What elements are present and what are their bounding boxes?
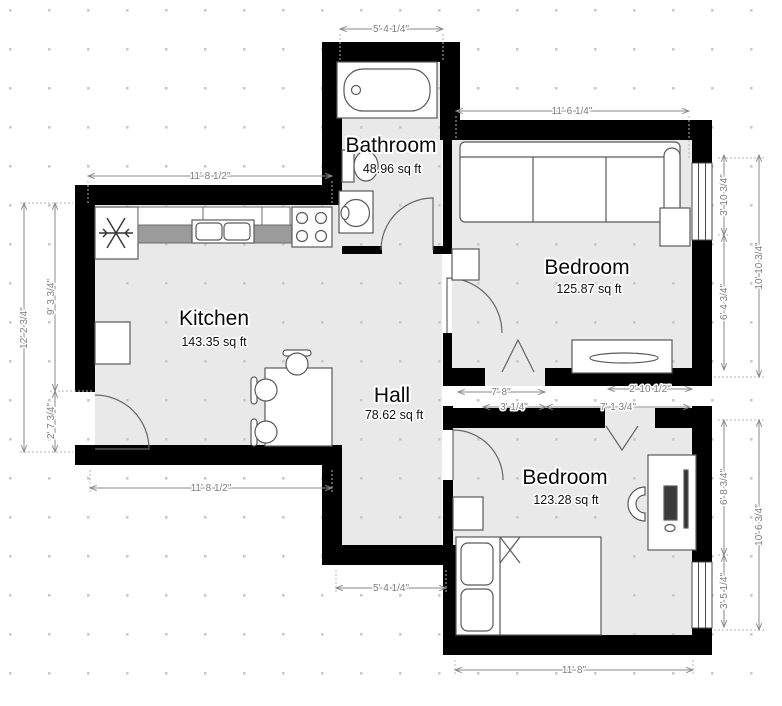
dim-label: 11' 8" bbox=[562, 665, 587, 676]
room-area-kitchen: 143.35 sq ft bbox=[181, 335, 247, 349]
dim-label: 6' 4 3/4" bbox=[719, 284, 730, 320]
dim-label: 11' 8 1/2" bbox=[191, 483, 232, 494]
room-area-bathroom: 48.96 sq ft bbox=[363, 162, 422, 176]
dim-label: 5' 4 1/4" bbox=[373, 583, 409, 594]
room-area-bedroom-top: 125.87 sq ft bbox=[556, 282, 622, 296]
room-area-hall: 78.62 sq ft bbox=[365, 408, 424, 422]
dresser-icon bbox=[572, 340, 672, 373]
window-bedroom-bottom bbox=[692, 562, 712, 628]
dim-label: 6' 8 3/4" bbox=[719, 469, 730, 505]
dim-label: 5' 4 1/4" bbox=[373, 24, 409, 35]
bathtub-icon bbox=[337, 62, 437, 118]
dim-label: 3' 1/4" bbox=[500, 402, 528, 413]
pillow bbox=[461, 543, 493, 585]
room-title-hall: Hall bbox=[374, 384, 410, 407]
stove-icon bbox=[292, 207, 332, 247]
computer-icon bbox=[664, 486, 677, 520]
pillow bbox=[461, 589, 493, 631]
window-bedroom-top bbox=[692, 163, 712, 240]
dim-label: 9' 3 3/4" bbox=[46, 279, 57, 315]
dim-label: 11' 8 1/2" bbox=[190, 171, 231, 182]
dim-label: 11' 6 1/4" bbox=[552, 106, 593, 117]
fridge-icon bbox=[95, 207, 138, 259]
nightstand bbox=[660, 208, 690, 246]
dim-label: 7' 8" bbox=[491, 387, 511, 398]
dim-label: 3' 5 1/4" bbox=[719, 573, 730, 609]
dim-label: 3' 10 3/4" bbox=[719, 174, 730, 216]
bed-icon bbox=[456, 537, 601, 635]
room-title-bedroom-top: Bedroom bbox=[544, 256, 629, 279]
nightstand bbox=[453, 497, 483, 530]
bathroom-sink-icon bbox=[339, 191, 373, 233]
room-title-bedroom-bottom: Bedroom bbox=[522, 466, 607, 489]
room-title-kitchen: Kitchen bbox=[179, 307, 249, 330]
hall-cabinet bbox=[452, 249, 479, 280]
kitchen-cabinet bbox=[95, 322, 130, 364]
dim-label: 10' 10 3/4" bbox=[754, 242, 765, 290]
dim-label: 7' 1 3/4" bbox=[600, 402, 636, 413]
room-area-bedroom-bottom: 123.28 sq ft bbox=[533, 493, 599, 507]
monitor-icon bbox=[684, 470, 688, 528]
mouse-icon bbox=[665, 525, 675, 532]
dim-label: 2' 10 1/2" bbox=[629, 384, 671, 395]
sofa-bed-icon bbox=[460, 142, 680, 222]
dim-label: 2' 7 3/4" bbox=[46, 403, 57, 439]
room-title-bathroom: Bathroom bbox=[345, 134, 436, 157]
dim-label: 12' 2 3/4" bbox=[19, 307, 30, 349]
dim-label: 10' 6 3/4" bbox=[754, 504, 765, 546]
floor-plan-canvas: 5' 4 1/4" 11' 6 1/4" 11' 8 1/2" 11' 8 1/… bbox=[0, 0, 782, 706]
kitchen-sink-icon bbox=[192, 220, 254, 243]
